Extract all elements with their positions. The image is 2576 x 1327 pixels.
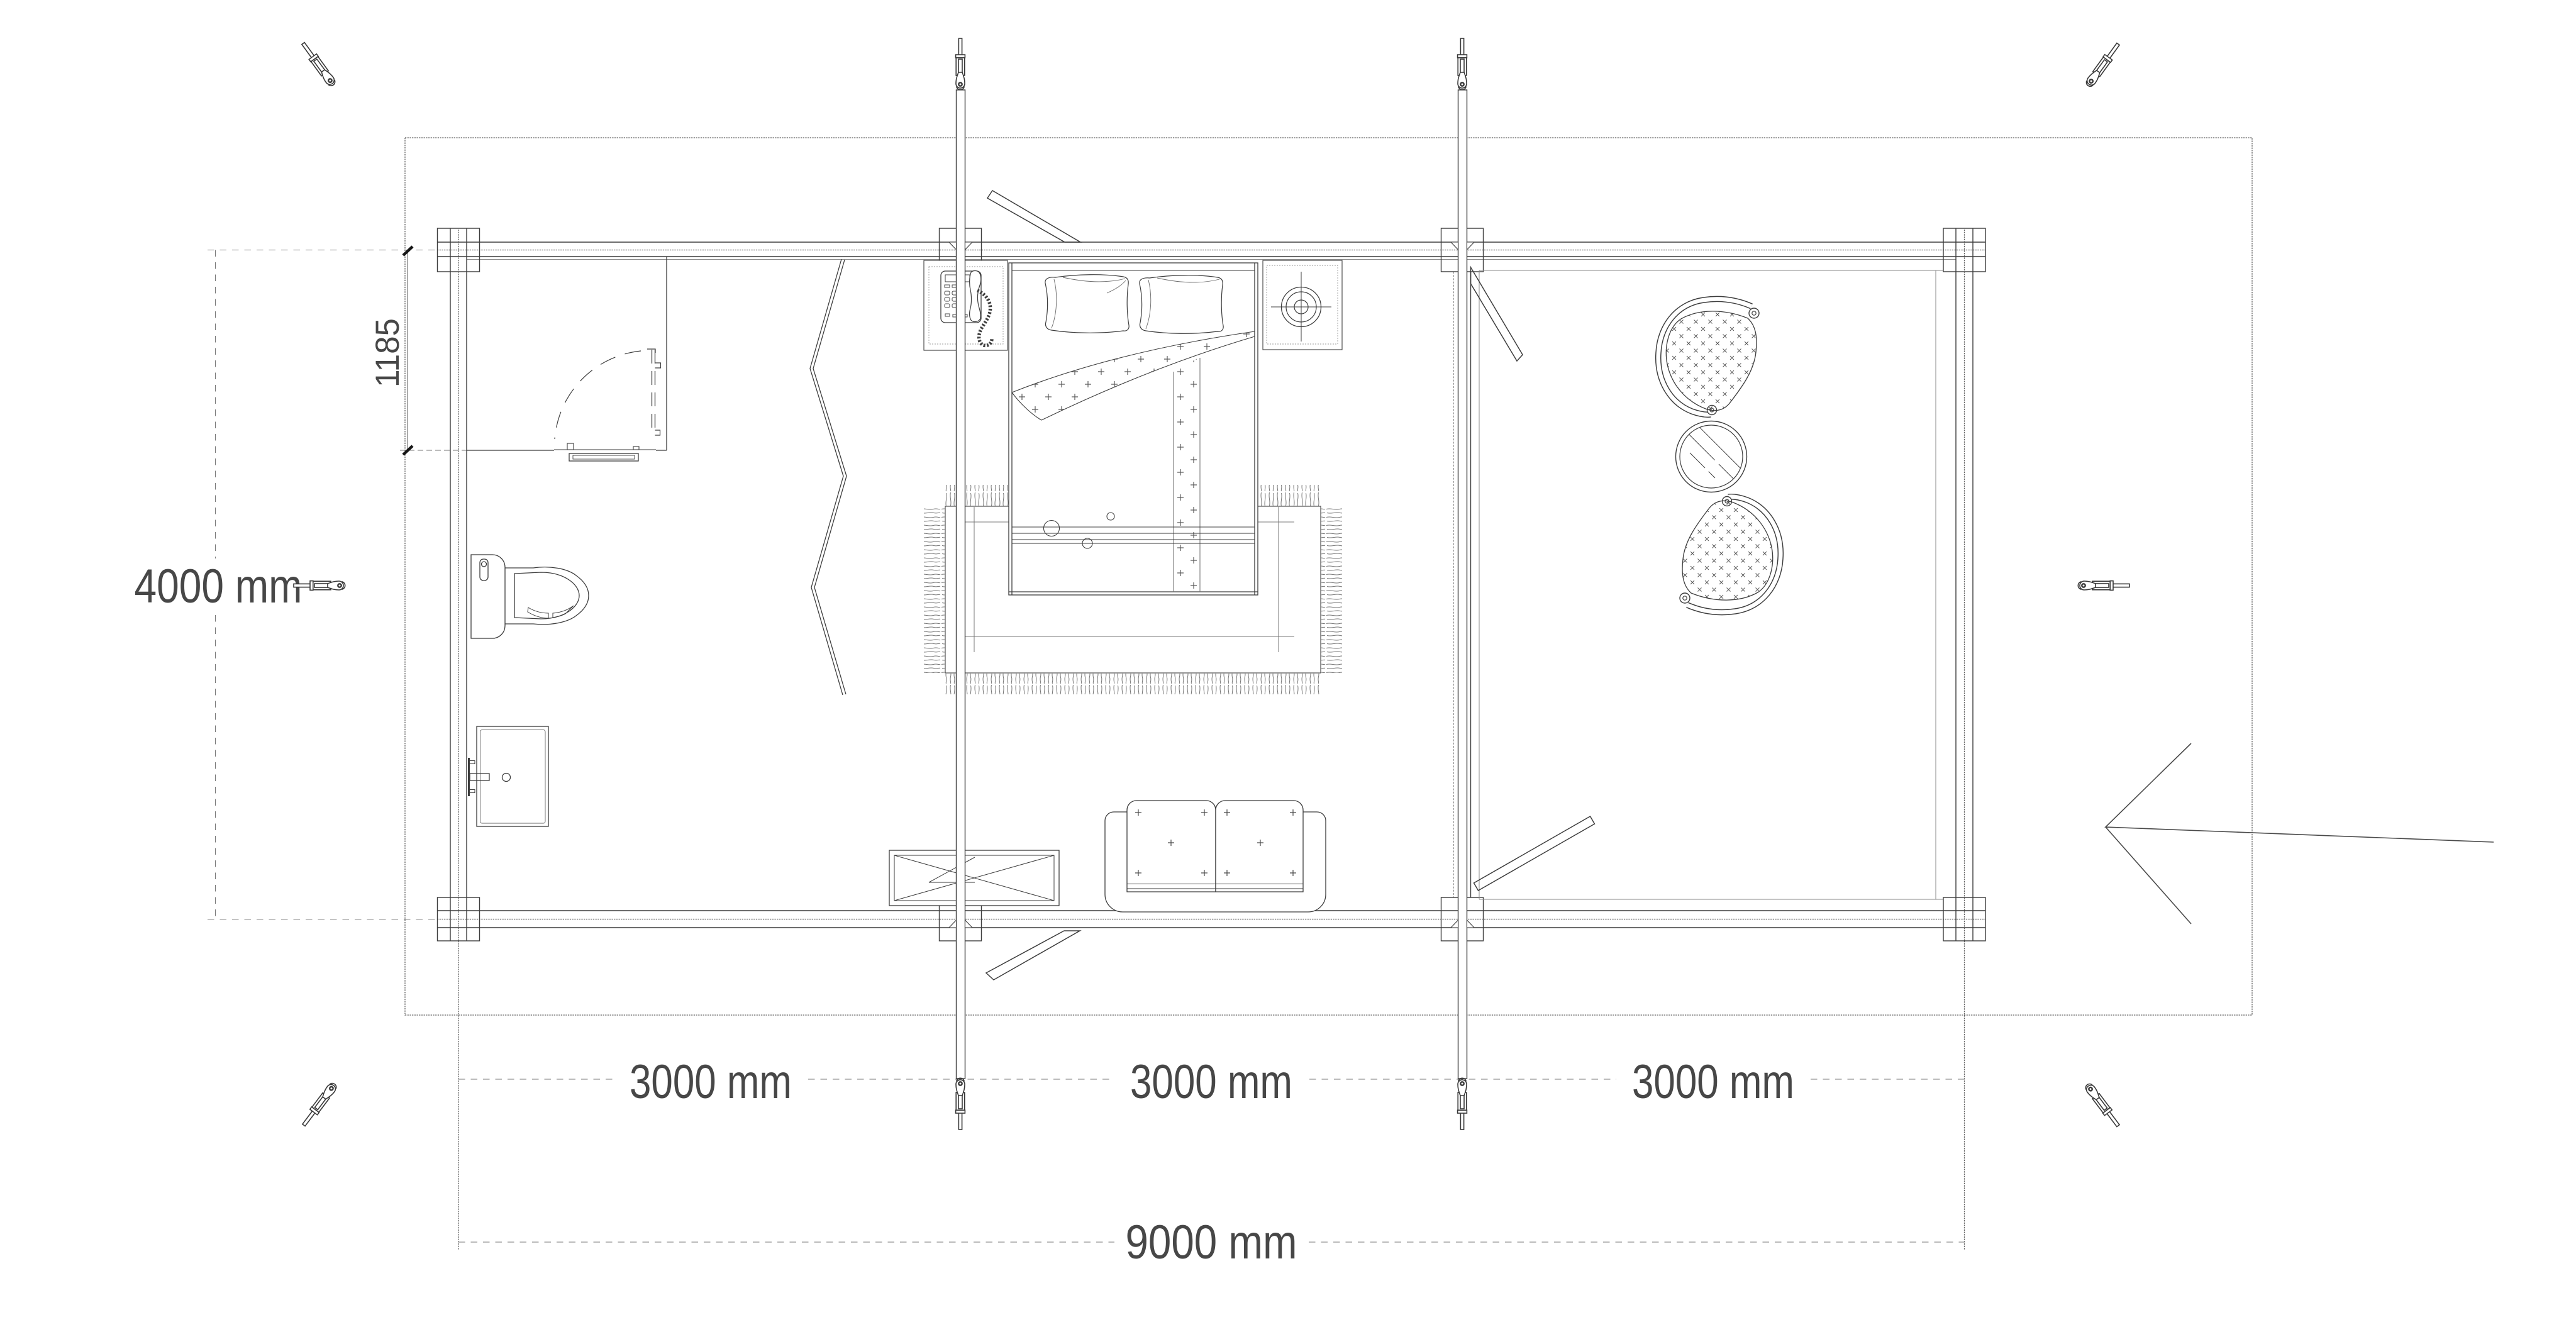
svg-text:3000 mm: 3000 mm [1130, 1055, 1292, 1109]
svg-text:3000 mm: 3000 mm [1632, 1055, 1794, 1109]
svg-text:9000 mm: 9000 mm [1126, 1216, 1297, 1269]
svg-text:3000 mm: 3000 mm [630, 1055, 792, 1109]
svg-text:1185: 1185 [369, 318, 406, 387]
svg-text:4000 mm: 4000 mm [135, 560, 303, 613]
